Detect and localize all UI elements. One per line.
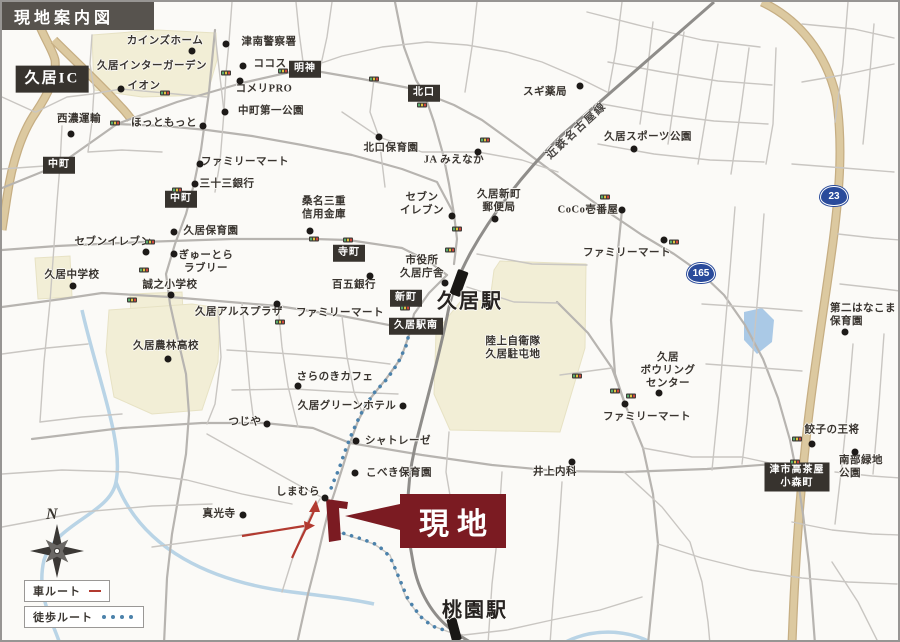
legend-car-route: 車ルート [24, 580, 110, 602]
legend-car-label: 車ルート [33, 583, 81, 599]
walk-route [329, 330, 444, 630]
compass-rose-icon [30, 524, 84, 578]
car-route-arrow-icon [88, 586, 101, 596]
legend-walk-label: 徒歩ルート [33, 609, 93, 625]
page-title: 現地案内図 [2, 2, 154, 30]
map-frame: カインズホーム津南警察署ココス久居インターガーデンイオンコメリPRO西濃運輸ほっ… [0, 0, 900, 642]
walk-route-dots-icon [100, 613, 135, 621]
legend-walk-route: 徒歩ルート [24, 606, 144, 628]
car-route [242, 500, 320, 558]
site-banner: 現地 [400, 494, 506, 548]
landuse-areas [35, 30, 774, 432]
compass-north-label: N [46, 506, 58, 524]
site-marker [326, 499, 400, 542]
